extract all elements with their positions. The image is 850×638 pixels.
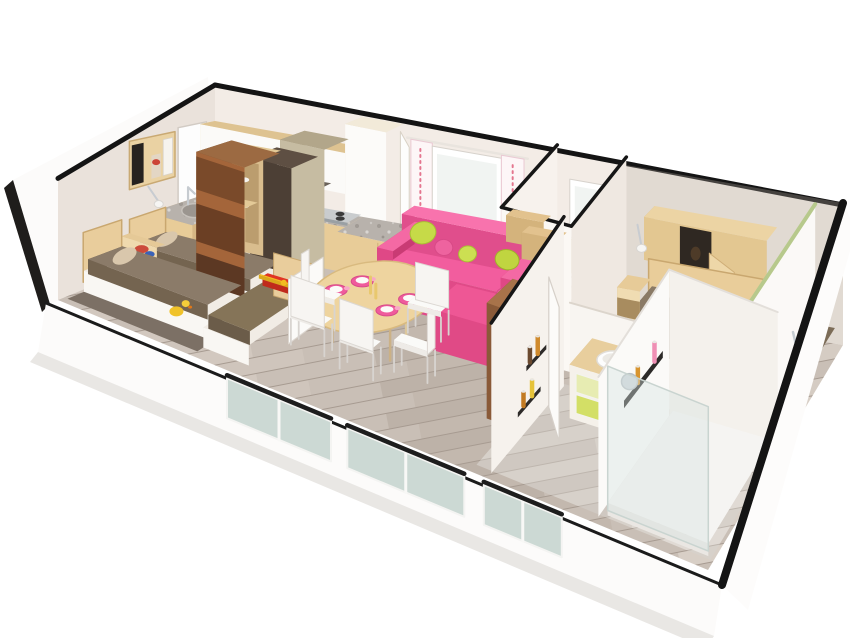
shower-bottle-pink	[652, 341, 656, 362]
kids-shelf-books-white	[163, 138, 172, 176]
toy-duck-beak	[188, 306, 192, 309]
toy-duck-head	[182, 300, 190, 307]
kids-shelf-books-dark	[132, 143, 144, 186]
bottle-amber-1	[536, 335, 540, 354]
hob-grate-2	[336, 212, 345, 216]
kids-shelf-toy-red	[152, 159, 160, 165]
kids-lamp	[154, 201, 163, 208]
bottle-dark-1	[528, 346, 532, 363]
kids-shelf-toy-shelf	[151, 153, 160, 179]
hob-grate-4	[336, 216, 345, 220]
toy-plane-prop	[281, 280, 287, 286]
mobile-home-3d-floorplan	[0, 0, 850, 638]
bottle-yellow-1	[530, 378, 534, 396]
toy-duck-body	[169, 306, 183, 316]
master-lamp-left	[637, 244, 647, 252]
screenshot-canvas	[0, 0, 850, 638]
bottle-amber-2	[522, 390, 526, 406]
sailboat-model	[691, 247, 701, 261]
